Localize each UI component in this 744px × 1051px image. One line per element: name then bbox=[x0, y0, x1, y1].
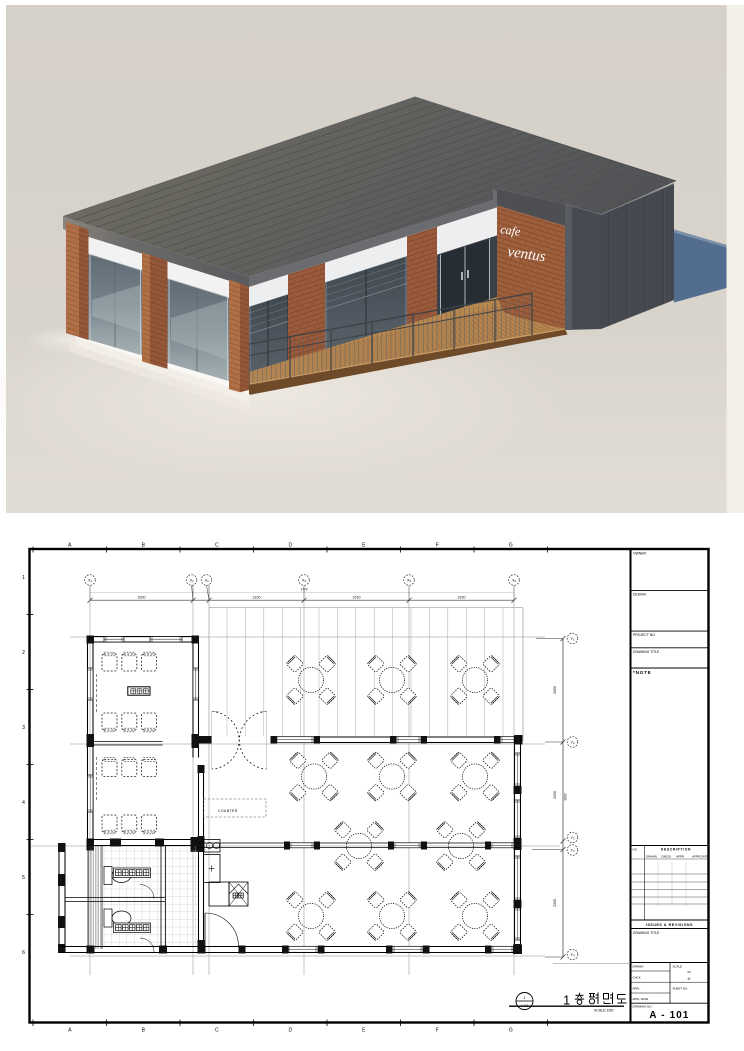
svg-text:APPR.DATE: APPR.DATE bbox=[692, 855, 708, 859]
svg-text:3300: 3300 bbox=[553, 791, 557, 799]
svg-text:G: G bbox=[509, 543, 513, 549]
svg-text:SCALE:1/50: SCALE:1/50 bbox=[594, 1009, 613, 1013]
svg-text:1: 1 bbox=[22, 575, 25, 581]
svg-text:C: C bbox=[215, 1028, 219, 1034]
svg-text:5: 5 bbox=[22, 875, 25, 881]
svg-text:3150: 3150 bbox=[353, 596, 361, 600]
svg-text:1774: 1774 bbox=[300, 588, 307, 592]
svg-text:4: 4 bbox=[22, 800, 25, 806]
svg-text:DRAWING TITLE: DRAWING TITLE bbox=[633, 931, 660, 935]
svg-text:CHCK: CHCK bbox=[633, 976, 641, 980]
svg-text:APPR.: APPR. bbox=[676, 855, 685, 859]
svg-text:F: F bbox=[436, 1028, 439, 1034]
svg-text:SCALE: SCALE bbox=[673, 965, 683, 969]
svg-text:ISSUES & REVISIONS: ISSUES & REVISIONS bbox=[646, 923, 693, 927]
svg-text:9600: 9600 bbox=[564, 793, 568, 800]
svg-text:D: D bbox=[288, 543, 292, 549]
svg-text:A-101: A-101 bbox=[521, 1004, 529, 1008]
svg-text:A3: A3 bbox=[687, 970, 691, 974]
svg-text:3000: 3000 bbox=[553, 686, 557, 694]
svg-text:F: F bbox=[436, 543, 439, 549]
svg-text:NO.: NO. bbox=[633, 848, 639, 852]
svg-text:SHEET NO.: SHEET NO. bbox=[673, 987, 689, 991]
svg-text:DRAWING TITLE: DRAWING TITLE bbox=[633, 650, 660, 654]
svg-text:D: D bbox=[288, 1028, 292, 1034]
svg-text:*NOTE: *NOTE bbox=[633, 670, 652, 675]
svg-text:COUNTER: COUNTER bbox=[218, 809, 238, 813]
svg-text:CHECK: CHECK bbox=[661, 855, 671, 859]
svg-text:2: 2 bbox=[22, 650, 25, 656]
svg-text:DRAWN: DRAWN bbox=[646, 855, 657, 859]
svg-text:C: C bbox=[215, 543, 219, 549]
svg-text:DESCRIPTION: DESCRIPTION bbox=[661, 848, 691, 852]
svg-text:1: 1 bbox=[563, 993, 570, 1008]
svg-text:cafe: cafe bbox=[500, 222, 522, 239]
svg-text:APPL.: APPL. bbox=[633, 987, 641, 991]
svg-text:OWNER: OWNER bbox=[633, 552, 647, 556]
svg-text:3: 3 bbox=[22, 725, 25, 731]
svg-text:G: G bbox=[509, 1028, 513, 1034]
svg-text:@: @ bbox=[687, 977, 690, 981]
svg-text:3150: 3150 bbox=[458, 596, 466, 600]
svg-text:3300: 3300 bbox=[553, 899, 557, 907]
svg-text:3150: 3150 bbox=[253, 596, 261, 600]
svg-text:APPL.DATE: APPL.DATE bbox=[633, 997, 649, 1001]
svg-text:DESIGN: DESIGN bbox=[633, 593, 647, 597]
svg-text:3300: 3300 bbox=[138, 596, 146, 600]
svg-text:DRAWING NO.: DRAWING NO. bbox=[633, 1005, 653, 1009]
svg-text:PROJECT NO.: PROJECT NO. bbox=[633, 633, 656, 637]
svg-text:DRAWN: DRAWN bbox=[633, 965, 644, 969]
svg-text:6: 6 bbox=[22, 950, 25, 956]
svg-text:A - 101: A - 101 bbox=[649, 1010, 689, 1021]
